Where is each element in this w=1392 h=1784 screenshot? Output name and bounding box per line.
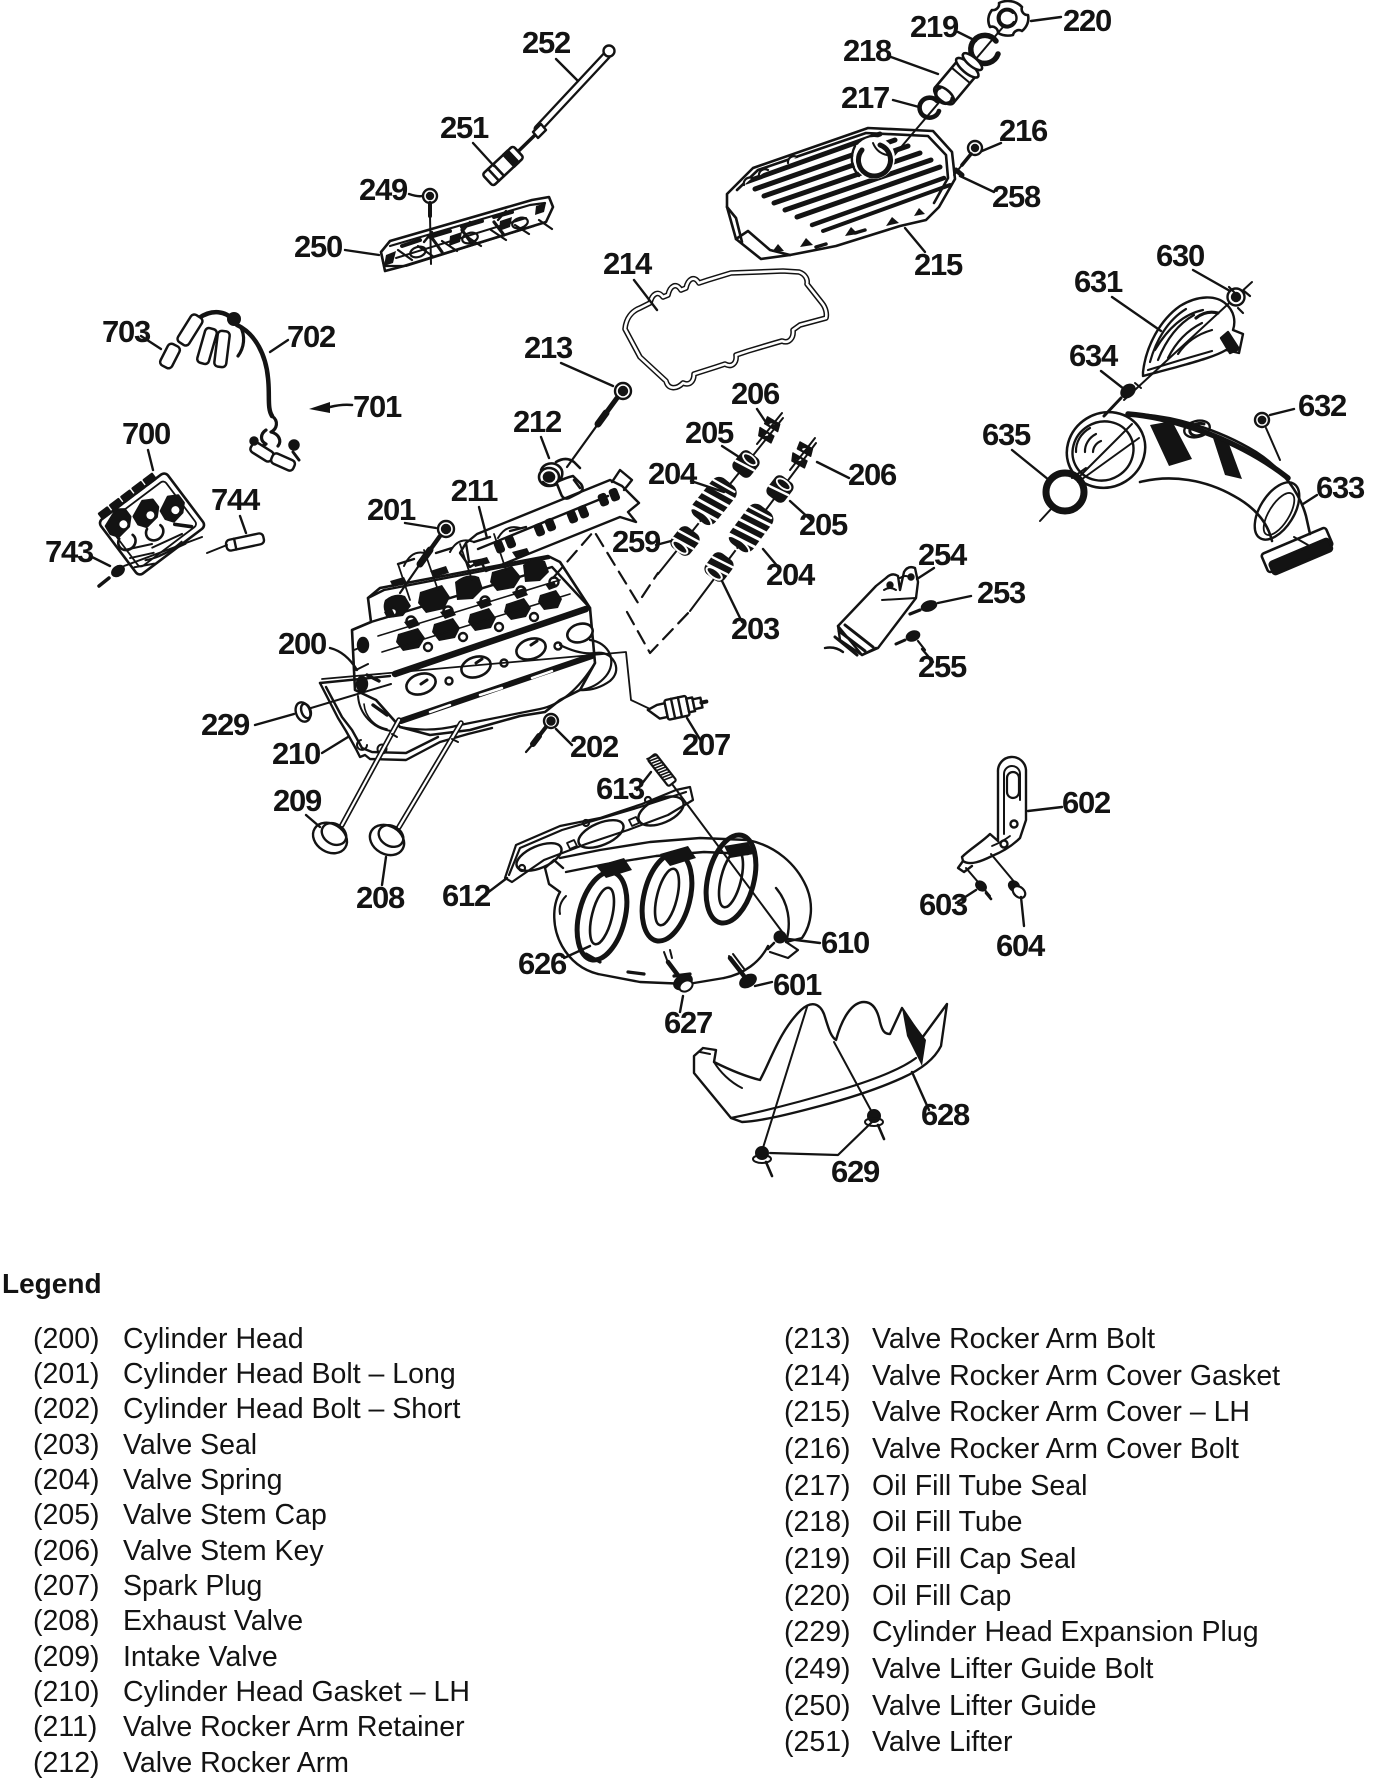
svg-text:702: 702 xyxy=(287,319,335,354)
svg-text:208: 208 xyxy=(356,880,405,915)
svg-text:(251): (251) xyxy=(784,1726,851,1758)
svg-text:632: 632 xyxy=(1298,388,1346,423)
svg-text:(219): (219) xyxy=(784,1543,851,1575)
svg-text:(217): (217) xyxy=(784,1470,851,1502)
svg-text:(209): (209) xyxy=(33,1641,100,1673)
svg-text:(250): (250) xyxy=(784,1690,851,1722)
svg-text:258: 258 xyxy=(992,179,1041,214)
svg-text:254: 254 xyxy=(918,537,968,572)
svg-text:(229): (229) xyxy=(784,1616,851,1648)
svg-text:205: 205 xyxy=(799,507,848,542)
svg-text:(207): (207) xyxy=(33,1570,100,1602)
svg-text:Valve Lifter: Valve Lifter xyxy=(872,1726,1013,1758)
svg-text:744: 744 xyxy=(211,482,261,517)
svg-text:205: 205 xyxy=(685,415,734,450)
svg-text:202: 202 xyxy=(570,729,618,764)
svg-text:249: 249 xyxy=(359,172,408,207)
svg-text:635: 635 xyxy=(982,417,1031,452)
svg-text:627: 627 xyxy=(664,1005,712,1040)
svg-text:Oil Fill Tube: Oil Fill Tube xyxy=(872,1506,1022,1538)
svg-text:200: 200 xyxy=(278,626,326,661)
svg-text:Cylinder Head Expansion Plug: Cylinder Head Expansion Plug xyxy=(872,1616,1259,1648)
svg-text:Valve Rocker Arm Retainer: Valve Rocker Arm Retainer xyxy=(123,1711,465,1743)
svg-text:207: 207 xyxy=(682,727,730,762)
svg-text:220: 220 xyxy=(1063,3,1111,38)
svg-text:Valve Lifter Guide Bolt: Valve Lifter Guide Bolt xyxy=(872,1653,1154,1685)
svg-text:Oil Fill Cap: Oil Fill Cap xyxy=(872,1580,1011,1612)
svg-text:(220): (220) xyxy=(784,1580,851,1612)
svg-text:Spark Plug: Spark Plug xyxy=(123,1570,262,1602)
svg-text:211: 211 xyxy=(451,473,498,508)
svg-text:Oil Fill Tube Seal: Oil Fill Tube Seal xyxy=(872,1470,1087,1502)
svg-text:(206): (206) xyxy=(33,1535,100,1567)
svg-text:(216): (216) xyxy=(784,1433,851,1465)
svg-text:701: 701 xyxy=(353,389,402,424)
svg-text:(215): (215) xyxy=(784,1396,851,1428)
svg-text:Valve Rocker Arm: Valve Rocker Arm xyxy=(123,1747,349,1779)
svg-text:703: 703 xyxy=(102,314,151,349)
svg-text:602: 602 xyxy=(1062,785,1110,820)
svg-text:Valve Lifter Guide: Valve Lifter Guide xyxy=(872,1690,1096,1722)
svg-text:628: 628 xyxy=(921,1097,970,1132)
svg-text:Valve Stem Cap: Valve Stem Cap xyxy=(123,1499,327,1531)
svg-text:251: 251 xyxy=(440,110,489,145)
svg-text:(208): (208) xyxy=(33,1605,100,1637)
svg-text:216: 216 xyxy=(999,113,1048,148)
svg-text:218: 218 xyxy=(843,33,892,68)
svg-text:(205): (205) xyxy=(33,1499,100,1531)
svg-text:Valve Rocker Arm Cover – LH: Valve Rocker Arm Cover – LH xyxy=(872,1396,1250,1428)
svg-text:201: 201 xyxy=(367,492,416,527)
svg-text:(200): (200) xyxy=(33,1323,100,1355)
svg-text:603: 603 xyxy=(919,887,968,922)
svg-text:Legend: Legend xyxy=(2,1268,102,1299)
svg-text:634: 634 xyxy=(1069,338,1119,373)
svg-text:(203): (203) xyxy=(33,1429,100,1461)
svg-text:700: 700 xyxy=(122,416,170,451)
svg-text:(210): (210) xyxy=(33,1676,100,1708)
svg-text:(202): (202) xyxy=(33,1393,100,1425)
svg-text:229: 229 xyxy=(201,707,250,742)
svg-text:206: 206 xyxy=(731,376,780,411)
svg-text:204: 204 xyxy=(648,456,698,491)
svg-text:215: 215 xyxy=(914,247,963,282)
svg-text:610: 610 xyxy=(821,925,869,960)
svg-text:601: 601 xyxy=(773,967,822,1002)
svg-text:250: 250 xyxy=(294,229,342,264)
svg-text:(201): (201) xyxy=(33,1358,100,1390)
svg-text:Valve Seal: Valve Seal xyxy=(123,1429,257,1461)
svg-text:630: 630 xyxy=(1156,238,1204,273)
svg-text:217: 217 xyxy=(841,80,889,115)
svg-text:Valve Rocker Arm Cover Bolt: Valve Rocker Arm Cover Bolt xyxy=(872,1433,1239,1465)
svg-text:212: 212 xyxy=(513,404,561,439)
svg-text:(218): (218) xyxy=(784,1506,851,1538)
svg-text:(204): (204) xyxy=(33,1464,100,1496)
svg-text:209: 209 xyxy=(273,783,322,818)
svg-text:631: 631 xyxy=(1074,264,1123,299)
svg-text:Cylinder Head Gasket – LH: Cylinder Head Gasket – LH xyxy=(123,1676,470,1708)
svg-text:Exhaust Valve: Exhaust Valve xyxy=(123,1605,303,1637)
svg-text:Cylinder Head Bolt – Long: Cylinder Head Bolt – Long xyxy=(123,1358,456,1390)
svg-text:Intake Valve: Intake Valve xyxy=(123,1641,278,1673)
svg-text:604: 604 xyxy=(996,928,1046,963)
svg-text:219: 219 xyxy=(910,9,959,44)
svg-text:Valve Rocker Arm Bolt: Valve Rocker Arm Bolt xyxy=(872,1323,1155,1355)
svg-text:213: 213 xyxy=(524,330,573,365)
svg-text:252: 252 xyxy=(522,25,570,60)
svg-text:(213): (213) xyxy=(784,1323,851,1355)
svg-text:(249): (249) xyxy=(784,1653,851,1685)
svg-text:259: 259 xyxy=(612,524,661,559)
svg-text:(212): (212) xyxy=(33,1747,100,1779)
svg-text:743: 743 xyxy=(45,534,94,569)
svg-text:214: 214 xyxy=(603,246,653,281)
svg-text:Oil Fill Cap Seal: Oil Fill Cap Seal xyxy=(872,1543,1076,1575)
svg-text:Valve Stem Key: Valve Stem Key xyxy=(123,1535,324,1567)
svg-text:206: 206 xyxy=(848,457,897,492)
svg-text:626: 626 xyxy=(518,946,567,981)
svg-text:Valve Rocker Arm Cover Gasket: Valve Rocker Arm Cover Gasket xyxy=(872,1360,1280,1392)
svg-text:Cylinder Head Bolt – Short: Cylinder Head Bolt – Short xyxy=(123,1393,461,1425)
svg-text:253: 253 xyxy=(977,575,1026,610)
svg-text:633: 633 xyxy=(1316,470,1365,505)
svg-text:Valve Spring: Valve Spring xyxy=(123,1464,282,1496)
svg-text:210: 210 xyxy=(272,736,320,771)
svg-text:629: 629 xyxy=(831,1154,880,1189)
svg-text:(214): (214) xyxy=(784,1360,851,1392)
svg-text:(211): (211) xyxy=(33,1711,97,1743)
svg-text:Cylinder Head: Cylinder Head xyxy=(123,1323,304,1355)
